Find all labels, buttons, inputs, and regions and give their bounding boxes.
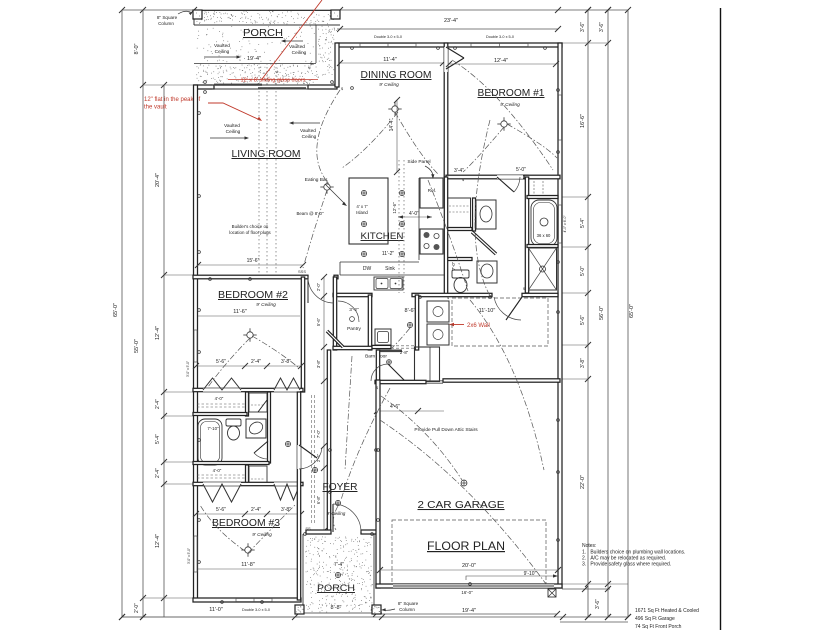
svg-text:Vaulted: Vaulted	[300, 128, 316, 134]
svg-text:19'-4": 19'-4"	[462, 608, 476, 614]
svg-text:Vaulted: Vaulted	[224, 123, 240, 129]
svg-text:BEDROOM #1: BEDROOM #1	[478, 88, 545, 99]
svg-text:23'-4": 23'-4"	[444, 18, 458, 24]
svg-text:12'-4": 12'-4"	[155, 326, 161, 340]
svg-text:Vaulted: Vaulted	[214, 43, 230, 49]
svg-text:3'-8": 3'-8"	[580, 358, 586, 368]
svg-text:Double 3-0 x 5-0: Double 3-0 x 5-0	[242, 608, 270, 612]
svg-text:12" flat in the peak of: 12" flat in the peak of	[144, 97, 201, 103]
svg-text:9' Ceiling: 9' Ceiling	[252, 532, 272, 538]
svg-text:Island: Island	[356, 210, 368, 215]
svg-text:5'-6": 5'-6"	[316, 317, 321, 326]
svg-text:4'-0": 4'-0"	[215, 396, 224, 401]
svg-text:16'-6": 16'-6"	[580, 114, 586, 128]
svg-text:11'-0": 11'-0"	[209, 607, 223, 613]
svg-text:4'-0": 4'-0"	[213, 468, 222, 473]
svg-text:1671 Sq Ft Heated & Cooled: 1671 Sq Ft Heated & Cooled	[635, 608, 699, 614]
svg-text:2'-4": 2'-4"	[251, 507, 261, 513]
svg-text:Column: Column	[399, 607, 415, 612]
svg-text:2'-0": 2'-0"	[134, 603, 140, 613]
svg-text:3'-8": 3'-8"	[316, 359, 321, 368]
svg-text:3'-6": 3'-6"	[580, 22, 586, 32]
svg-text:3'-4": 3'-4"	[454, 168, 464, 174]
svg-text:12' x 8' sliding glass doors: 12' x 8' sliding glass doors	[241, 78, 306, 84]
svg-text:the vault: the vault	[144, 105, 167, 111]
svg-text:11'-6": 11'-6"	[233, 309, 247, 315]
svg-text:15'-6": 15'-6"	[247, 258, 260, 264]
svg-text:22'-0": 22'-0"	[580, 475, 586, 489]
svg-text:PORCH: PORCH	[243, 27, 283, 39]
svg-text:65'-0": 65'-0"	[629, 304, 635, 318]
svg-text:4' x 7': 4' x 7'	[356, 204, 367, 209]
svg-text:2x6 Wall: 2x6 Wall	[467, 323, 490, 329]
svg-text:Ceiling: Ceiling	[215, 49, 230, 55]
svg-text:Notes:: Notes:	[582, 543, 596, 549]
svg-text:DW: DW	[363, 266, 372, 272]
svg-text:3'-2": 3'-2"	[349, 307, 359, 313]
svg-text:6'-8": 6'-8"	[316, 495, 321, 504]
svg-text:5'-6": 5'-6"	[216, 359, 226, 365]
svg-text:7'-0": 7'-0"	[316, 429, 321, 438]
svg-text:2'-4": 2'-4"	[155, 468, 161, 478]
svg-text:5'-0": 5'-0"	[516, 167, 526, 173]
svg-text:36 x 60: 36 x 60	[537, 233, 551, 238]
svg-text:8" Square: 8" Square	[398, 601, 419, 606]
svg-text:2'-4": 2'-4"	[251, 359, 261, 365]
svg-text:2'-4": 2'-4"	[155, 399, 161, 409]
svg-text:14'-4": 14'-4"	[389, 118, 395, 131]
svg-text:PORCH: PORCH	[317, 583, 355, 594]
svg-text:LIVING ROOM: LIVING ROOM	[232, 149, 301, 160]
svg-text:9' Ceiling: 9' Ceiling	[500, 102, 520, 108]
svg-text:9' Ceiling: 9' Ceiling	[327, 511, 346, 516]
svg-text:2'-8": 2'-8"	[400, 350, 409, 355]
svg-text:3'-6": 3'-6"	[595, 599, 601, 609]
svg-text:4'-6": 4'-6"	[390, 404, 400, 410]
svg-text:56'-0": 56'-0"	[599, 306, 605, 320]
svg-text:FLOOR PLAN: FLOOR PLAN	[427, 539, 505, 553]
svg-text:74 Sq Ft Front Porch: 74 Sq Ft Front Porch	[635, 624, 682, 630]
svg-text:Pantry: Pantry	[347, 326, 361, 332]
svg-text:Ref.: Ref.	[428, 188, 436, 193]
svg-text:Double 3-0 x 5-0: Double 3-0 x 5-0	[486, 35, 514, 39]
svg-text:65'-0": 65'-0"	[113, 303, 119, 317]
svg-text:11'-4": 11'-4"	[383, 57, 397, 63]
svg-text:3'-6": 3'-6"	[599, 22, 605, 32]
svg-text:4'-0": 4'-0"	[409, 211, 419, 217]
svg-text:SS: SS	[305, 526, 311, 531]
svg-text:7'-4": 7'-4"	[334, 562, 344, 568]
svg-text:Sink: Sink	[385, 266, 395, 272]
svg-text:20'-0": 20'-0"	[462, 563, 476, 569]
svg-text:8'-8": 8'-8"	[331, 605, 342, 611]
svg-text:12'-6": 12'-6"	[392, 202, 397, 214]
svg-text:55'-0": 55'-0"	[134, 339, 140, 353]
svg-text:3. Provide safety glass wher: 3. Provide safety glass where required.	[582, 562, 671, 568]
svg-text:8" Square: 8" Square	[157, 15, 178, 20]
svg-text:11'-8": 11'-8"	[241, 562, 255, 568]
svg-text:7'-10": 7'-10"	[207, 426, 219, 431]
svg-text:5'-6": 5'-6"	[580, 315, 586, 325]
svg-text:5'-6": 5'-6"	[216, 507, 226, 513]
svg-text:BEDROOM #2: BEDROOM #2	[218, 290, 288, 301]
svg-text:3'-0" x 5'-0": 3'-0" x 5'-0"	[187, 548, 191, 564]
svg-text:7'-0": 7'-0"	[451, 261, 456, 270]
svg-text:8'-0": 8'-0"	[134, 43, 140, 54]
svg-text:2'-0": 2'-0"	[316, 282, 321, 291]
svg-text:location of floor plugs: location of floor plugs	[229, 230, 271, 235]
svg-text:19'-4": 19'-4"	[247, 56, 261, 62]
svg-text:8'-6": 8'-6"	[405, 308, 416, 314]
svg-text:Vaulted: Vaulted	[289, 44, 305, 50]
svg-text:11'-10": 11'-10"	[479, 308, 496, 314]
svg-text:9' Ceiling: 9' Ceiling	[379, 82, 399, 88]
svg-text:Builder's choice on: Builder's choice on	[232, 224, 269, 229]
svg-text:2 CAR GARAGE: 2 CAR GARAGE	[418, 499, 505, 511]
svg-text:Double 3-0 x 5-0: Double 3-0 x 5-0	[374, 35, 402, 39]
svg-text:Ceiling: Ceiling	[302, 134, 317, 140]
svg-text:5'-4": 5'-4"	[580, 218, 586, 228]
svg-text:3'-8": 3'-8"	[281, 359, 291, 365]
svg-text:5'-0": 5'-0"	[580, 266, 586, 276]
svg-text:4'-0" x 6'-0": 4'-0" x 6'-0"	[563, 215, 567, 233]
svg-text:20'-4": 20'-4"	[155, 173, 161, 187]
svg-text:DINING ROOM: DINING ROOM	[361, 70, 432, 81]
svg-text:5'-4": 5'-4"	[155, 434, 161, 444]
svg-text:Ceiling: Ceiling	[292, 50, 307, 56]
svg-text:BEDROOM #3: BEDROOM #3	[212, 518, 280, 529]
svg-text:12'-4": 12'-4"	[494, 58, 508, 64]
svg-text:9' Ceiling: 9' Ceiling	[256, 302, 276, 308]
svg-text:Beam @ 8'-0": Beam @ 8'-0"	[296, 211, 324, 216]
svg-text:12'-4": 12'-4"	[155, 534, 161, 548]
svg-text:FOYER: FOYER	[323, 482, 358, 493]
svg-text:11'-2": 11'-2"	[382, 251, 395, 257]
svg-text:3'-0" x 5'-0": 3'-0" x 5'-0"	[186, 361, 190, 377]
svg-text:SSS: SSS	[298, 269, 306, 274]
svg-text:KITCHEN: KITCHEN	[361, 231, 404, 242]
svg-text:16'-0": 16'-0"	[461, 590, 473, 595]
svg-text:Ceiling: Ceiling	[226, 129, 241, 135]
svg-text:Column: Column	[158, 21, 174, 26]
svg-text:Provide Pull Down Attic Stairs: Provide Pull Down Attic Stairs	[414, 427, 478, 433]
svg-text:496 Sq Ft Garage: 496 Sq Ft Garage	[635, 616, 675, 622]
